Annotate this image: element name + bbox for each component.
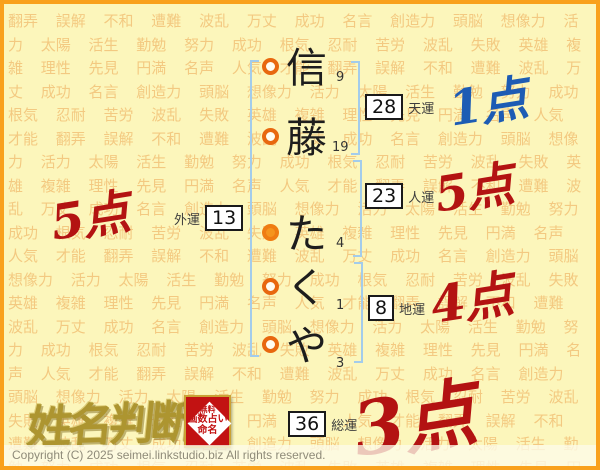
score-jinun: 5点 — [429, 144, 516, 225]
stroke-marker — [262, 224, 279, 241]
name-char-row: 信 9 — [256, 48, 366, 106]
tenun-value-box: 28 — [365, 94, 403, 120]
stroke-count: 1 — [336, 298, 344, 313]
score-chiun: 4点 — [425, 254, 516, 338]
stroke-marker — [262, 58, 279, 75]
name-char-row: く 1 — [256, 268, 366, 326]
name-character: く — [286, 266, 327, 311]
seal-text: 無料 画数占い 命名 — [188, 406, 228, 436]
seal-line: 命名 — [188, 426, 228, 437]
stroke-marker — [262, 336, 279, 353]
gaiun-row: 外運 13 — [174, 205, 243, 231]
name-character: や — [286, 324, 327, 369]
stroke-count: 9 — [336, 70, 344, 85]
tenun-label: 天運 — [408, 98, 434, 117]
name-character: 藤 — [286, 116, 327, 161]
chiun-row: 8 地運 — [368, 295, 425, 321]
tenun-row: 28 天運 — [365, 94, 434, 120]
soun-row: 36 総運 — [288, 411, 357, 437]
name-character: た — [286, 212, 327, 257]
stroke-marker — [262, 278, 279, 295]
seimei-handan-page: 翻弄 誤解 不和 遭難 波乱 万丈 成功 名言 創造力 頭脳 想像力 活力 太陽… — [0, 0, 600, 470]
gaiun-label: 外運 — [174, 209, 200, 228]
chiun-value-box: 8 — [368, 295, 394, 321]
jinun-label: 人運 — [408, 187, 434, 206]
stroke-count: 19 — [332, 140, 349, 155]
score-tenun: 1点 — [443, 58, 530, 139]
name-character: 信 — [286, 46, 327, 91]
chiun-label: 地運 — [399, 299, 425, 318]
copyright-text: Copyright (C) 2025 seimei.linkstudio.biz… — [4, 445, 596, 466]
jinun-value-box: 23 — [365, 183, 403, 209]
soun-value-box: 36 — [288, 411, 326, 437]
stroke-marker — [262, 128, 279, 145]
jinun-row: 23 人運 — [365, 183, 434, 209]
footer-strip: Copyright (C) 2025 seimei.linkstudio.biz… — [4, 445, 596, 466]
free-naming-seal[interactable]: 無料 画数占い 命名 — [184, 395, 231, 448]
name-char-row: 藤 19 — [256, 118, 366, 176]
gaiun-value-box: 13 — [205, 205, 243, 231]
score-gaiun: 5点 — [45, 172, 132, 253]
stroke-count: 3 — [336, 356, 344, 371]
stroke-count: 4 — [336, 236, 344, 251]
